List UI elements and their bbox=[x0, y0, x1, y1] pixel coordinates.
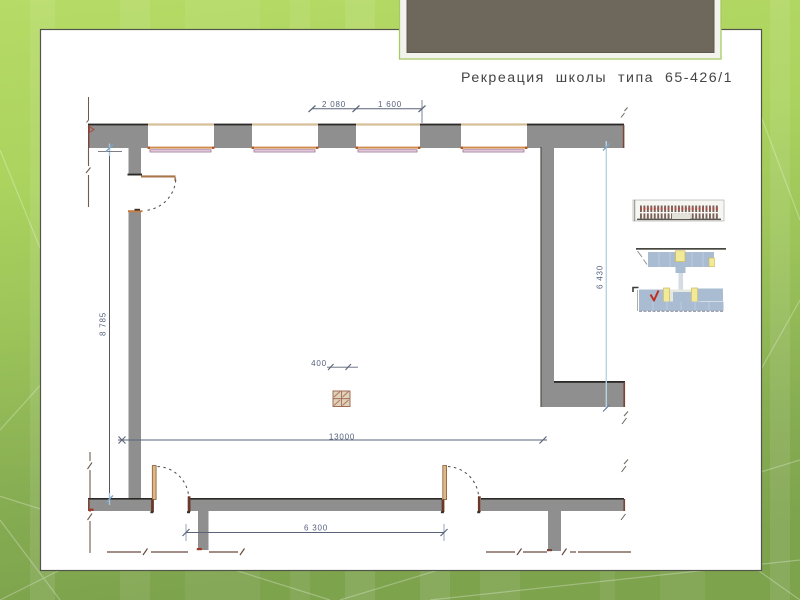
svg-text:400: 400 bbox=[311, 359, 327, 368]
svg-text:6 430: 6 430 bbox=[596, 265, 605, 289]
svg-text:6 300: 6 300 bbox=[304, 524, 328, 533]
svg-text:1 600: 1 600 bbox=[378, 100, 402, 109]
svg-text:8 785: 8 785 bbox=[99, 312, 108, 336]
svg-text:Рекреация школы типа 65-426/1: Рекреация школы типа 65-426/1 bbox=[461, 70, 733, 86]
svg-text:2 080: 2 080 bbox=[322, 100, 346, 109]
svg-text:13000: 13000 bbox=[329, 433, 355, 442]
